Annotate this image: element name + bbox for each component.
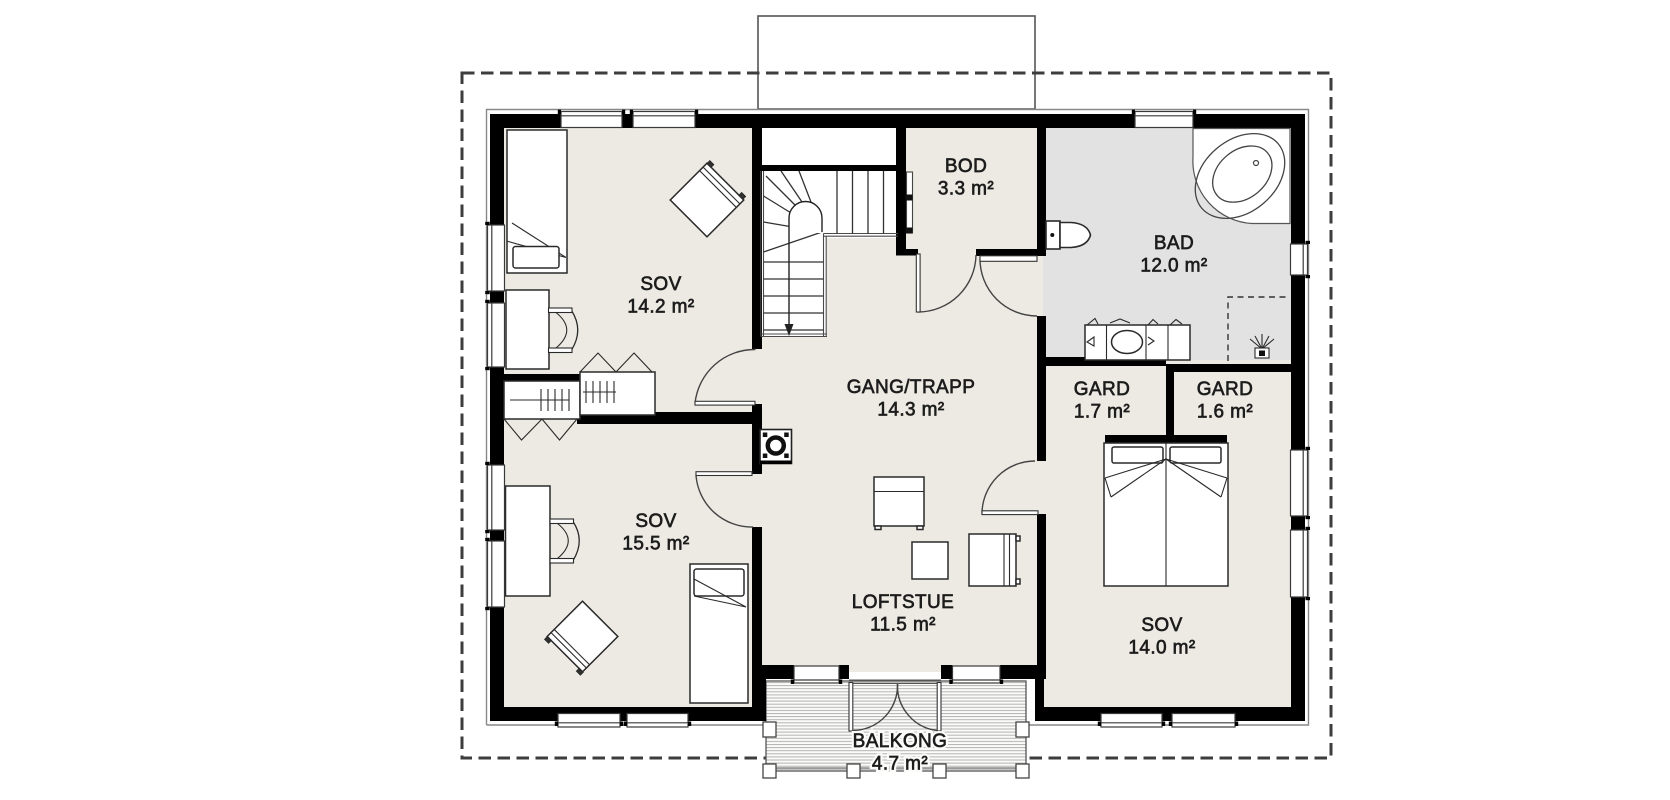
svg-text:1.6 m²: 1.6 m² [1197,402,1253,423]
svg-text:14.3 m²: 14.3 m² [877,400,944,421]
svg-text:1.7 m²: 1.7 m² [1074,402,1130,423]
svg-text:4.7 m²: 4.7 m² [872,754,928,775]
svg-text:LOFTSTUE: LOFTSTUE [852,592,954,613]
svg-text:GARD: GARD [1197,379,1254,400]
svg-text:11.5 m²: 11.5 m² [870,615,936,636]
svg-text:GANG/TRAPP: GANG/TRAPP [847,377,976,398]
svg-text:14.0 m²: 14.0 m² [1128,638,1195,659]
svg-text:BAD: BAD [1154,233,1194,254]
svg-text:3.3 m²: 3.3 m² [938,179,994,200]
svg-text:SOV: SOV [640,274,681,295]
svg-text:BALKONG: BALKONG [853,731,948,752]
svg-text:GARD: GARD [1074,379,1131,400]
svg-text:12.0 m²: 12.0 m² [1140,256,1207,277]
svg-text:BOD: BOD [945,156,987,177]
svg-text:15.5 m²: 15.5 m² [622,534,689,555]
svg-text:SOV: SOV [1141,615,1182,636]
svg-text:SOV: SOV [635,511,676,532]
svg-text:14.2 m²: 14.2 m² [627,297,694,318]
